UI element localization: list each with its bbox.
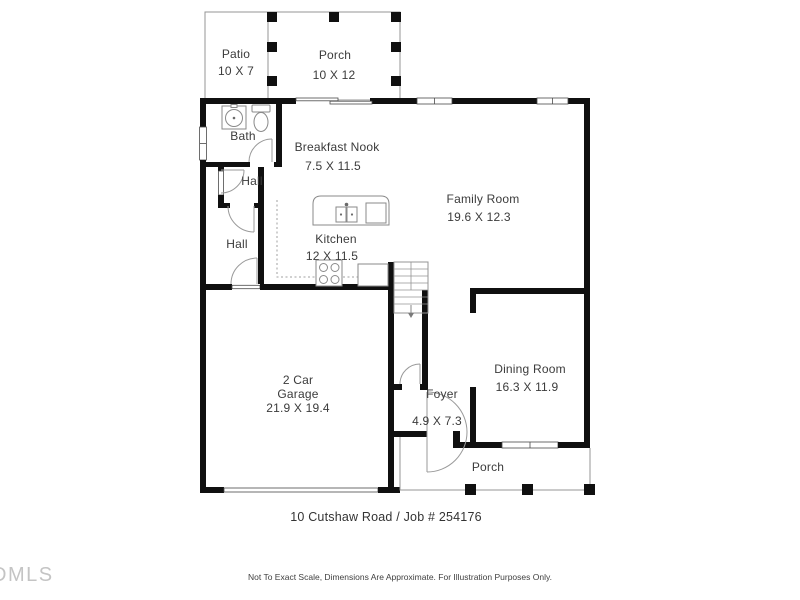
wall-segment — [422, 290, 428, 390]
room-label-porch-bottom: Porch — [472, 460, 504, 474]
floor-plan-svg: Patio 10 X 7 Porch 10 X 12 Bath Breakfas… — [0, 0, 800, 600]
wall-segment — [558, 442, 590, 448]
room-label-family-room: Family Room — [447, 192, 520, 206]
room-dims-kitchen: 12 X 11.5 — [306, 249, 358, 263]
wall-segment — [200, 160, 206, 493]
porch-post — [391, 42, 401, 52]
toilet-icon — [252, 105, 270, 132]
wall-segment — [460, 442, 502, 448]
outer-walls — [200, 98, 590, 493]
wall-segment — [200, 98, 296, 104]
window — [502, 442, 558, 448]
room-label-foyer: Foyer — [426, 387, 458, 401]
kitchen-island — [313, 196, 389, 225]
room-dims-patio: 10 X 7 — [218, 64, 254, 78]
porch-post — [267, 12, 277, 22]
door-threshold — [232, 285, 260, 288]
room-label-garage-line2: Garage — [277, 387, 318, 401]
sliding-door — [296, 98, 372, 104]
room-dims-dining-room: 16.3 X 11.9 — [496, 380, 559, 394]
room-label-porch-top: Porch — [319, 48, 351, 62]
door-arc — [400, 364, 420, 384]
wall-segment — [200, 284, 232, 290]
porch-post — [329, 12, 339, 22]
room-dims-family-room: 19.6 X 12.3 — [447, 210, 511, 224]
kitchen-counter — [358, 264, 388, 286]
wall-segment — [370, 98, 417, 104]
room-label-hall-lower: Hall — [226, 237, 247, 251]
room-label-hall-upper: Hall — [241, 174, 262, 188]
wall-segment — [452, 98, 537, 104]
porch-post — [391, 76, 401, 86]
room-label-patio: Patio — [222, 47, 250, 61]
wall-segment — [390, 431, 427, 437]
disclaimer-text: Not To Exact Scale, Dimensions Are Appro… — [248, 572, 552, 582]
sliding-door-panel — [330, 101, 372, 104]
sliding-door-panel — [296, 98, 338, 101]
wall-segment — [394, 384, 402, 390]
room-label-garage-line1: 2 Car — [283, 373, 313, 387]
room-dims-breakfast-nook: 7.5 X 11.5 — [305, 159, 361, 173]
counter-edge — [277, 200, 315, 277]
door-arc — [228, 206, 254, 232]
front-door-arc — [427, 392, 467, 472]
floor-plan-page: Patio 10 X 7 Porch 10 X 12 Bath Breakfas… — [0, 0, 800, 600]
porch-post — [391, 12, 401, 22]
room-label-breakfast-nook: Breakfast Nook — [295, 140, 381, 154]
window — [417, 98, 452, 104]
address-job-caption: 10 Cutshaw Road / Job # 254176 — [290, 510, 482, 524]
bath-fixtures — [222, 105, 270, 132]
wall-segment — [453, 431, 460, 448]
wall-segment — [200, 162, 250, 167]
wall-segment — [470, 288, 590, 294]
porch-post — [267, 42, 277, 52]
room-dims-porch-top: 10 X 12 — [313, 68, 356, 82]
stove-icon — [316, 260, 342, 286]
wall-segment — [200, 98, 206, 127]
porch-post — [522, 484, 533, 495]
wall-segment — [584, 98, 590, 448]
wall-segment — [388, 262, 394, 493]
room-dims-foyer: 4.9 X 7.3 — [412, 414, 462, 428]
door-frame — [219, 171, 224, 195]
door-arc — [231, 258, 257, 284]
wall-segment — [276, 104, 282, 164]
room-label-bath: Bath — [230, 129, 256, 143]
room-dims-garage: 21.9 X 19.4 — [266, 401, 330, 415]
porch-post — [465, 484, 476, 495]
window — [537, 98, 568, 104]
room-label-dining-room: Dining Room — [494, 362, 566, 376]
bath-sink-icon — [222, 105, 246, 130]
room-label-kitchen: Kitchen — [315, 232, 356, 246]
porch-post — [584, 484, 595, 495]
window — [200, 127, 207, 160]
wall-segment — [470, 387, 476, 448]
island-cabinet — [366, 203, 386, 223]
stairs-direction-arrow — [408, 305, 414, 318]
garage-door — [224, 488, 378, 492]
watermark: DMLS — [0, 564, 54, 586]
wall-segment — [200, 487, 224, 493]
porch-post — [267, 76, 277, 86]
